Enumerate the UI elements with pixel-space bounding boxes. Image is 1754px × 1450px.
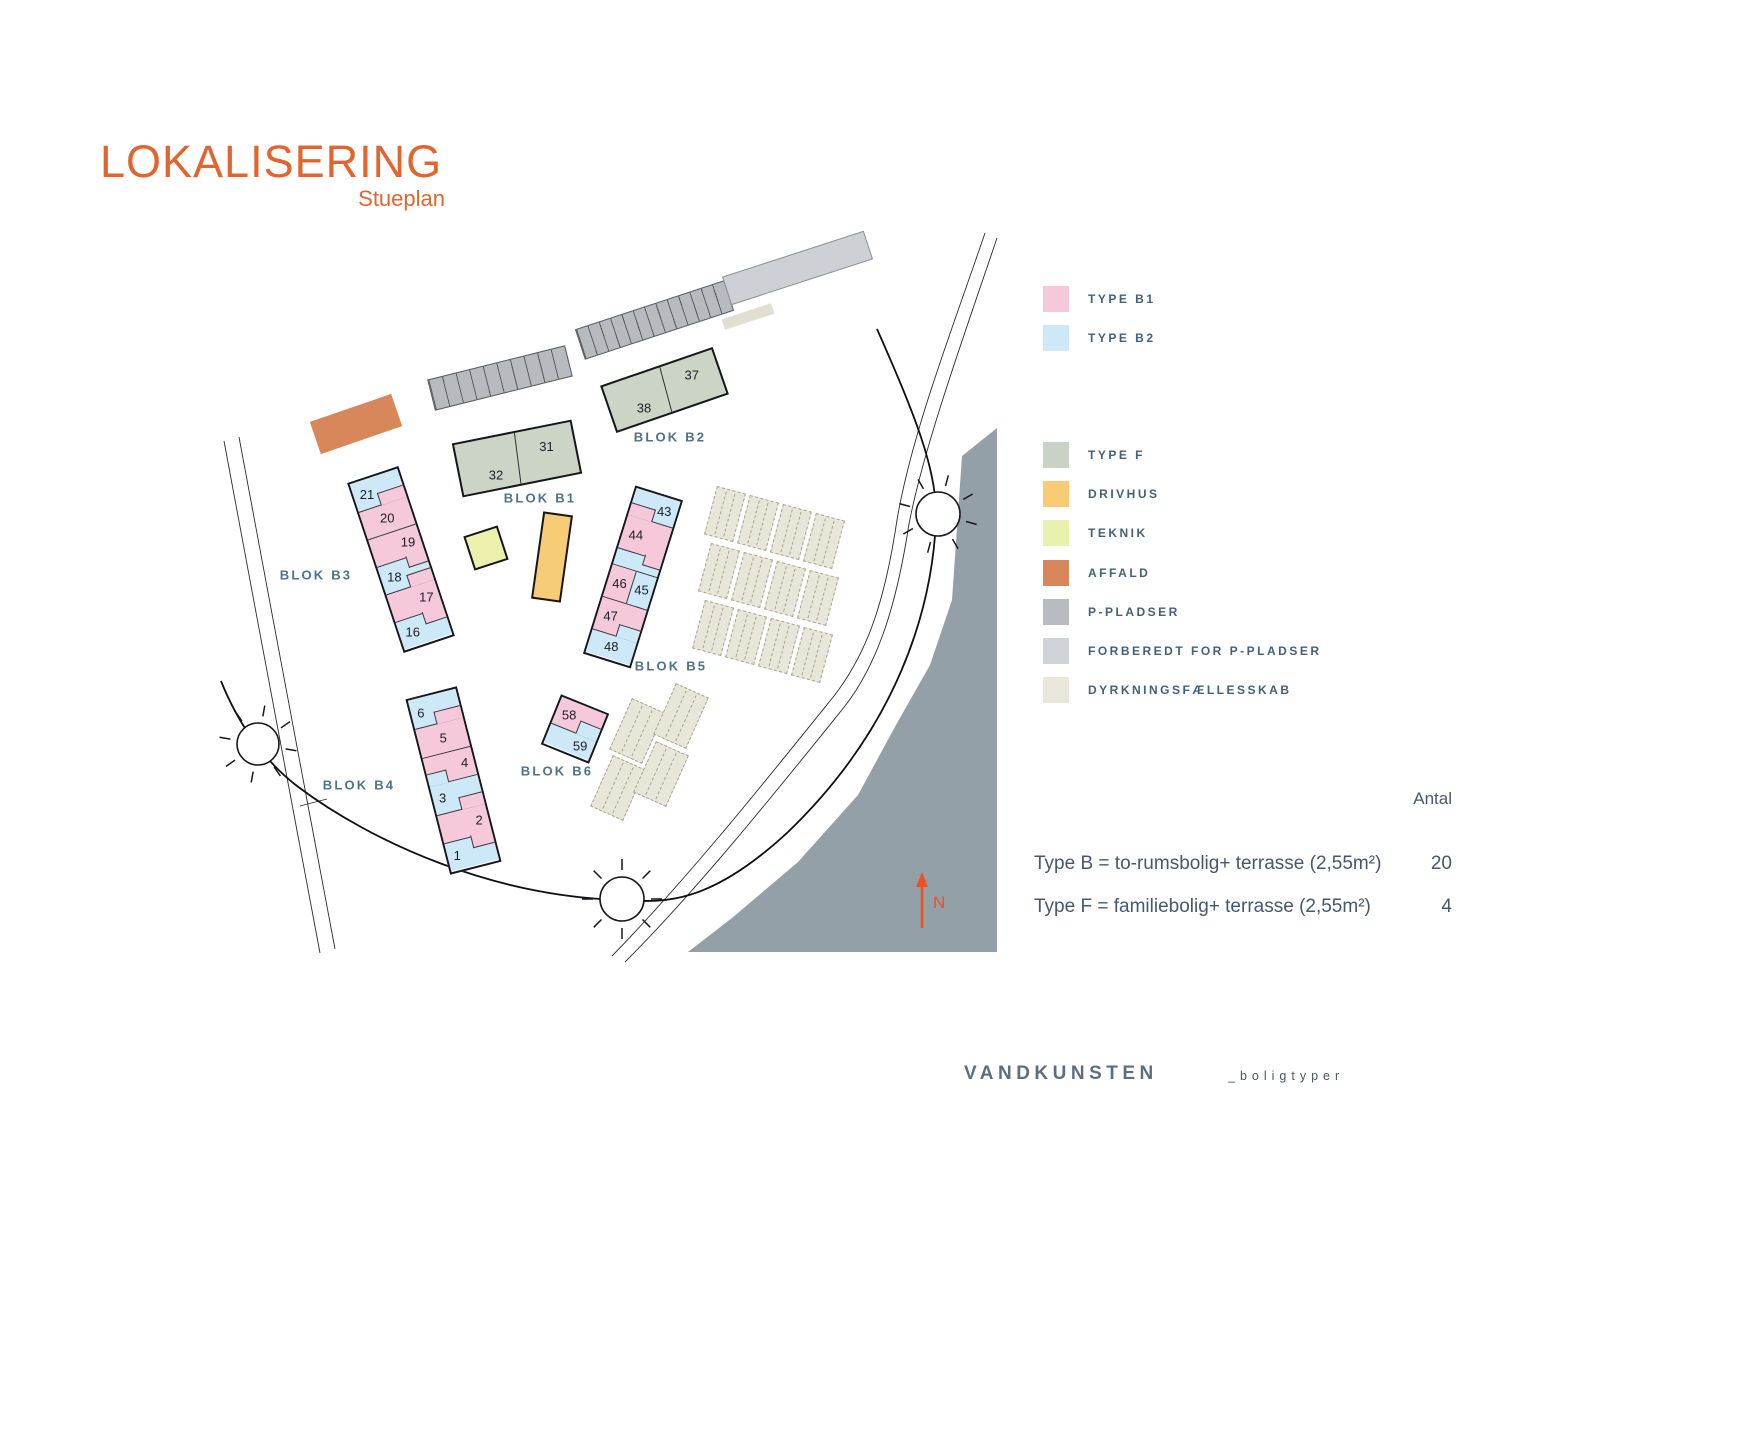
unit-number-32: 32 xyxy=(489,467,503,480)
sun-ray xyxy=(594,871,602,879)
legend-swatch-forberedt-for-p-pladser xyxy=(1043,638,1069,664)
legend-label: DRIVHUS xyxy=(1088,487,1160,501)
legend-label: TYPE B1 xyxy=(1088,292,1156,306)
legend-label: AFFALD xyxy=(1088,566,1150,580)
summary-antal-header: Antal xyxy=(1410,789,1452,809)
sun-ray xyxy=(220,737,231,739)
unit-number-20: 20 xyxy=(380,511,394,524)
sun-ray xyxy=(928,542,931,553)
north-label: N xyxy=(933,893,945,913)
page-title: LOKALISERING xyxy=(100,136,442,188)
legend-swatch-type-f xyxy=(1043,442,1069,468)
garden-plot-divider xyxy=(666,691,687,737)
sun-icon xyxy=(600,877,644,921)
unit-number-44: 44 xyxy=(629,528,643,541)
garden-plot-divider xyxy=(724,494,736,537)
garden-plot-divider xyxy=(817,578,829,621)
unit-number-5: 5 xyxy=(439,731,446,744)
unit-number-43: 43 xyxy=(657,504,671,517)
garden-plot-divider xyxy=(603,763,624,809)
sun-ray xyxy=(643,920,651,928)
unit-number-38: 38 xyxy=(636,401,650,414)
sun-ray xyxy=(899,504,910,507)
block-label-b5: BLOK B5 xyxy=(635,659,707,674)
legend-label: TYPE B2 xyxy=(1088,331,1156,345)
road-line xyxy=(239,437,335,949)
sun-ray xyxy=(643,871,651,879)
summary-row-value: 20 xyxy=(1392,853,1452,875)
unit-number-45: 45 xyxy=(635,584,649,597)
unit-number-18: 18 xyxy=(387,570,401,583)
unit-number-31: 31 xyxy=(539,440,553,453)
sun-ray xyxy=(263,706,265,717)
page: { "title": {"main": "LOKALISERING", "sub… xyxy=(0,0,1754,1450)
sun-ray xyxy=(281,722,290,728)
legend-swatch-teknik xyxy=(1043,520,1069,546)
block-label-b1: BLOK B1 xyxy=(504,491,576,506)
legend-swatch-type-b2 xyxy=(1043,325,1069,351)
sun-ray xyxy=(251,772,253,783)
unit-number-58: 58 xyxy=(562,708,576,721)
legend-swatch-type-b1 xyxy=(1043,286,1069,312)
unit-number-4: 4 xyxy=(460,756,467,769)
garden-plot-divider xyxy=(784,569,796,612)
summary-row-value: 4 xyxy=(1392,896,1452,918)
garden-plot-divider xyxy=(790,512,802,555)
block-label-b6: BLOK B6 xyxy=(521,764,593,779)
legend-label: P-PLADSER xyxy=(1088,605,1180,619)
garden-plot-divider xyxy=(778,626,790,669)
garden-plot-divider xyxy=(712,608,724,651)
unit-number-37: 37 xyxy=(684,368,698,381)
legend-label: FORBEREDT FOR P-PLADSER xyxy=(1088,644,1322,658)
garden-plot-divider xyxy=(757,503,769,546)
sun-ray xyxy=(594,920,602,928)
garden-plot-divider xyxy=(622,706,643,752)
legend-swatch-dyrkningsfællesskab xyxy=(1043,677,1069,703)
summary-row-label: Type B = to-rumsbolig+ terrasse (2,55m²) xyxy=(1034,853,1381,875)
legend-label: DYRKNINGSFÆLLESSKAB xyxy=(1088,683,1292,697)
sun-icon xyxy=(237,723,279,765)
sun-icon xyxy=(916,492,960,536)
block-label-b2: BLOK B2 xyxy=(634,430,706,445)
unit-number-21: 21 xyxy=(360,487,374,500)
road-line xyxy=(224,441,320,953)
block-label-b4: BLOK B4 xyxy=(323,778,395,793)
unit-number-6: 6 xyxy=(417,706,424,719)
garden-plot-divider xyxy=(745,617,757,660)
garden-plot-divider xyxy=(751,560,763,603)
block-label-b3: BLOK B3 xyxy=(280,568,352,583)
garden-plot-divider xyxy=(646,749,667,795)
unit-number-2: 2 xyxy=(475,813,482,826)
legend-label: TYPE F xyxy=(1088,448,1145,462)
unit-number-3: 3 xyxy=(439,792,446,805)
unit-number-48: 48 xyxy=(604,641,618,654)
garden-plot-divider xyxy=(811,635,823,678)
unit-number-19: 19 xyxy=(400,535,414,548)
sun-ray xyxy=(226,760,235,766)
summary-row-label: Type F = familiebolig+ terrasse (2,55m²) xyxy=(1034,896,1371,918)
sun-ray xyxy=(918,479,924,489)
unit-number-46: 46 xyxy=(612,577,626,590)
legend-swatch-affald xyxy=(1043,560,1069,586)
unit-number-59: 59 xyxy=(572,740,586,753)
legend-swatch-p-pladser xyxy=(1043,599,1069,625)
site-plan-canvas xyxy=(0,0,1754,1450)
unit-number-1: 1 xyxy=(453,848,460,861)
unit-number-17: 17 xyxy=(419,590,433,603)
garden-plot-divider xyxy=(718,551,730,594)
footer-note: _boligtyper xyxy=(1228,1069,1344,1083)
unit-number-47: 47 xyxy=(603,610,617,623)
legend-swatch-drivhus xyxy=(1043,481,1069,507)
footer-brand: VANDKUNSTEN xyxy=(964,1063,1158,1085)
unit-number-16: 16 xyxy=(405,625,419,638)
sun-ray xyxy=(946,475,949,486)
legend-label: TEKNIK xyxy=(1088,526,1148,540)
garden-plot-divider xyxy=(823,521,835,564)
unit-cell xyxy=(454,433,524,495)
page-subtitle: Stueplan xyxy=(300,186,445,212)
sun-ray xyxy=(286,749,297,751)
